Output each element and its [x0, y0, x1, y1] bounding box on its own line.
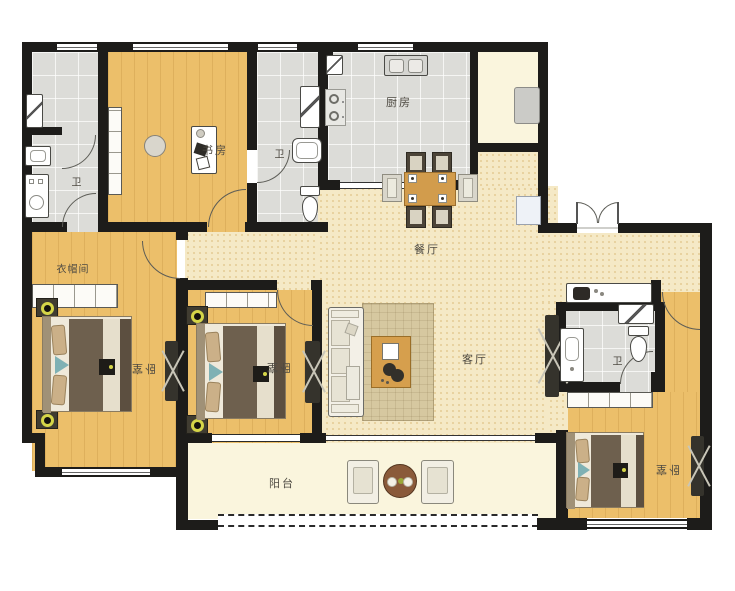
wall-segment [257, 222, 328, 232]
fridge-icon [514, 87, 540, 124]
room-label-bath-mid: 卫 [275, 146, 286, 161]
radiator-icon [305, 341, 320, 403]
bed-icon [566, 432, 644, 508]
cabinet-icon [516, 196, 541, 225]
radiator-icon [545, 315, 559, 397]
wall-segment [300, 433, 326, 443]
window [57, 42, 97, 52]
sofa-icon [328, 307, 364, 417]
sink-icon [25, 146, 51, 166]
room-label-living: 客厅 [462, 351, 488, 367]
wall-segment [540, 223, 577, 233]
wall-segment [325, 180, 340, 190]
window [212, 434, 300, 442]
radiator-icon [165, 341, 178, 401]
kitchen-sink-icon [384, 55, 428, 76]
wall-segment [97, 42, 133, 52]
room-label-kitchen: 厨房 [386, 94, 412, 110]
wall-segment [228, 42, 258, 52]
dining-chair-icon [382, 174, 402, 202]
window [587, 519, 687, 529]
wall-segment [187, 433, 212, 443]
window [358, 42, 413, 52]
washing-machine-icon [25, 174, 49, 218]
plate-icon [438, 174, 447, 183]
room-label-cloakroom: 衣帽间 [57, 261, 90, 276]
entry-double-door-left [577, 202, 598, 223]
wall-segment [22, 433, 45, 443]
room-label-bedroom-mid: 卧室 [265, 360, 291, 376]
coffee-table-icon [371, 336, 411, 388]
shower-icon [618, 304, 654, 324]
toilet-tank-icon [628, 326, 649, 336]
room-label-bedroom-right: 卧室 [654, 462, 680, 478]
wall-segment [535, 433, 558, 443]
room-label-study: 书房 [202, 142, 228, 158]
entry-threshold [577, 227, 618, 229]
window [258, 42, 297, 52]
radiator-icon [691, 436, 704, 496]
round-table-icon [383, 464, 417, 498]
wall-segment [247, 52, 257, 150]
armchair-icon [347, 460, 379, 504]
balcony-railing [218, 514, 538, 527]
wall-segment [188, 280, 277, 290]
dining-chair-icon [458, 174, 478, 202]
wall-segment [35, 467, 62, 477]
console-table-icon [566, 283, 652, 303]
dining-chair-icon [432, 206, 452, 228]
desk-chair-icon [144, 135, 166, 157]
wardrobe-icon [205, 292, 277, 308]
armchair-icon [421, 460, 454, 504]
room-label-balcony: 阳台 [269, 475, 295, 491]
shower-icon [300, 86, 320, 128]
dining-chair-icon [432, 152, 452, 174]
wall-segment [22, 222, 67, 232]
door-leaf [617, 202, 619, 224]
room-label-bath-top-left: 卫 [72, 174, 83, 189]
plate-icon [408, 174, 417, 183]
room-label-dining: 餐厅 [414, 241, 440, 257]
dining-chair-icon [406, 152, 426, 174]
dining-chair-icon [406, 206, 426, 228]
water-heater-icon [326, 55, 343, 75]
wall-segment [413, 42, 548, 52]
nightstand-lamp-icon [36, 298, 58, 317]
room-label-bath-right: 卫 [613, 353, 624, 368]
wall-segment [176, 232, 188, 240]
window [133, 42, 228, 52]
stove-icon [325, 89, 346, 126]
wall-segment [470, 143, 540, 152]
balcony-sliding-door [326, 435, 540, 441]
wall-segment [470, 42, 478, 192]
bed-icon [42, 316, 132, 412]
toilet-tank-icon [300, 186, 320, 196]
passage-floor [548, 392, 568, 432]
wall-segment [618, 223, 712, 233]
wall-segment [98, 52, 108, 232]
wall-segment [245, 222, 257, 232]
window [62, 467, 150, 477]
wardrobe-icon [567, 392, 653, 408]
vanity-sink-icon [560, 328, 584, 382]
plate-icon [438, 194, 447, 203]
wall-segment [22, 127, 62, 135]
shower-icon [26, 94, 43, 128]
entry-double-door-right [598, 202, 619, 223]
room-label-bedroom-left: 卧室 [130, 361, 156, 377]
wall-segment [655, 311, 665, 382]
bathtub-icon [292, 138, 322, 163]
bookshelf-icon [108, 107, 122, 195]
wall-segment [108, 222, 207, 232]
plate-icon [408, 194, 417, 203]
desk-plant-icon [196, 129, 205, 138]
door-leaf [576, 202, 578, 224]
floor-plan: 卫 书房 卫 厨房 餐厅 客厅 衣帽间 卧室 卧室 阳台 卫 卧室 [0, 0, 735, 591]
